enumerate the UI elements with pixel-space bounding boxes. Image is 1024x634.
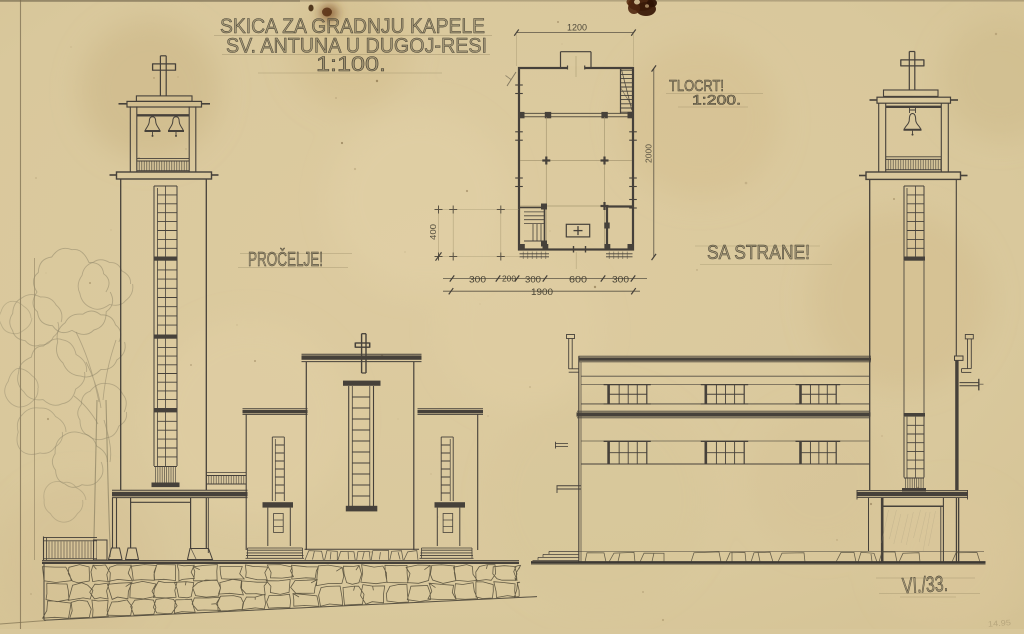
svg-text:300: 300: [469, 275, 486, 285]
svg-text:600: 600: [569, 275, 587, 286]
svg-text:400: 400: [429, 223, 438, 240]
svg-text:SA STRANE!: SA STRANE!: [707, 242, 810, 264]
svg-text:14.95: 14.95: [988, 618, 1012, 629]
svg-text:300: 300: [525, 275, 541, 285]
svg-text:1200: 1200: [567, 23, 587, 33]
svg-text:PROČELJE!: PROČELJE!: [248, 248, 323, 271]
svg-text:300: 300: [612, 275, 629, 285]
svg-text:1900: 1900: [531, 287, 553, 298]
svg-text:1:200.: 1:200.: [692, 92, 741, 108]
svg-text:1:100.: 1:100.: [316, 53, 386, 76]
svg-text:VI./33.: VI./33.: [901, 571, 948, 598]
svg-text:2000: 2000: [645, 143, 654, 163]
svg-text:200: 200: [502, 275, 517, 284]
